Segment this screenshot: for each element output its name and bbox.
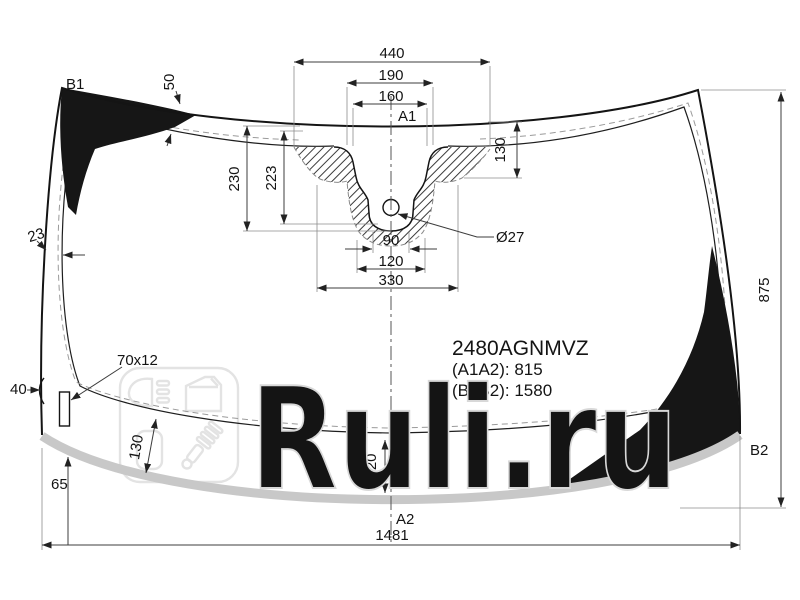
dim-text-65: 65 <box>51 476 68 493</box>
dim-text-23: 23 <box>26 225 47 246</box>
dim-text-70x12: 70x12 <box>117 352 158 369</box>
windshield-drawing-page: 440 190 160 A1 230 223 130 90 120 330 Ø2… <box>0 0 800 600</box>
label-a1: A1 <box>398 108 416 125</box>
dim-text-160: 160 <box>378 88 403 105</box>
mirror-bracket-rect <box>60 392 70 426</box>
dim-text-hole-diameter: Ø27 <box>496 229 524 246</box>
dim-text-440: 440 <box>379 45 404 62</box>
dim-text-120-center: 120 <box>378 253 403 270</box>
dim-text-1481: 1481 <box>375 527 408 544</box>
dim-text-50: 50 <box>161 74 178 91</box>
dim-text-130-right: 130 <box>492 137 509 162</box>
windshield-diagram: 440 190 160 A1 230 223 130 90 120 330 Ø2… <box>0 0 800 600</box>
dim-text-190: 190 <box>378 67 403 84</box>
dim-text-90: 90 <box>383 232 400 249</box>
part-number: 2480AGNMVZ <box>452 337 589 360</box>
dim-text-223: 223 <box>263 165 280 190</box>
dim-text-230: 230 <box>226 166 243 191</box>
dim-arrow-50-upper <box>176 91 180 104</box>
dim-text-330: 330 <box>378 272 403 289</box>
watermark-brand-text: Ruli.ru <box>250 358 678 522</box>
dim-text-40: 40 <box>10 381 27 398</box>
dim-text-875: 875 <box>756 277 773 302</box>
label-b2: B2 <box>750 442 768 459</box>
label-b1: B1 <box>66 76 84 93</box>
